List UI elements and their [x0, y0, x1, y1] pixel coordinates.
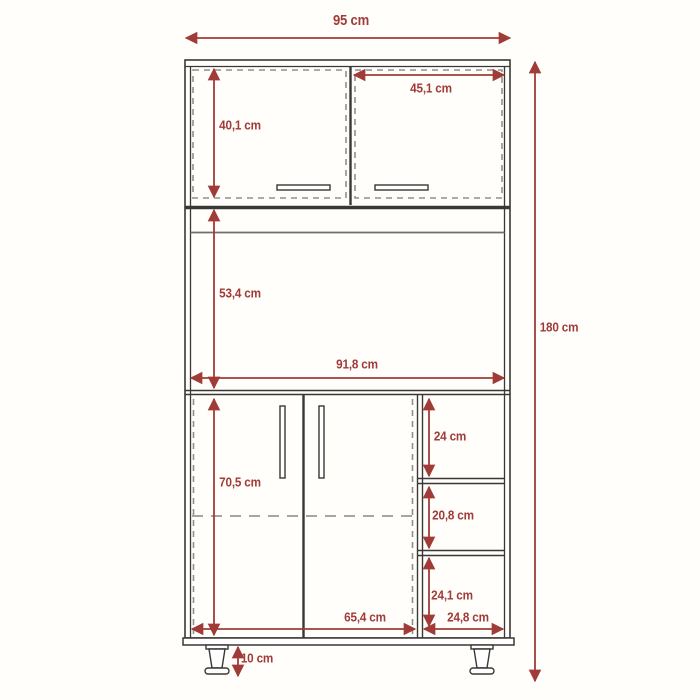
dim-label-overall-width: 95 cm	[333, 13, 369, 29]
dim-label-upper-right-door-width: 45,1 cm	[410, 81, 452, 96]
dim-label-lower-door-height: 70,5 cm	[219, 475, 261, 490]
upper-right-door-handle	[375, 185, 428, 190]
left-leg-base	[205, 668, 229, 674]
dim-label-upper-door-height: 40,1 cm	[219, 118, 261, 133]
upper-left-door-handle	[277, 185, 330, 190]
left-leg	[205, 645, 229, 674]
right-leg	[470, 645, 494, 674]
dim-label-interior-width: 91,8 cm	[336, 357, 378, 372]
left-leg-body	[209, 649, 225, 668]
dim-label-middle-shelf-height: 20,8 cm	[432, 508, 474, 523]
dim-label-open-section-height: 53,4 cm	[219, 286, 261, 301]
right-leg-body	[474, 649, 490, 668]
dim-label-shelf-column-width: 24,8 cm	[447, 610, 489, 625]
right-leg-base	[470, 668, 494, 674]
upper-left-door-outline	[193, 70, 346, 198]
lower-right-door-handle	[319, 406, 324, 478]
dim-label-top-shelf-height: 24 cm	[434, 429, 466, 444]
lower-left-door-handle	[280, 406, 285, 478]
cabinet-dimension-diagram: 95 cm 180 cm 40,1 cm 45,1 cm 53,4 cm 91,…	[0, 0, 700, 700]
diagram-linework	[0, 0, 700, 700]
cabinet-outline	[185, 60, 510, 638]
dim-label-overall-height: 180 cm	[540, 320, 579, 335]
dim-label-leg-height: 10 cm	[241, 651, 273, 666]
dim-label-lower-doors-width: 65,4 cm	[344, 610, 386, 625]
base-band	[183, 638, 514, 645]
dim-label-bottom-shelf-height: 24,1 cm	[431, 588, 473, 603]
